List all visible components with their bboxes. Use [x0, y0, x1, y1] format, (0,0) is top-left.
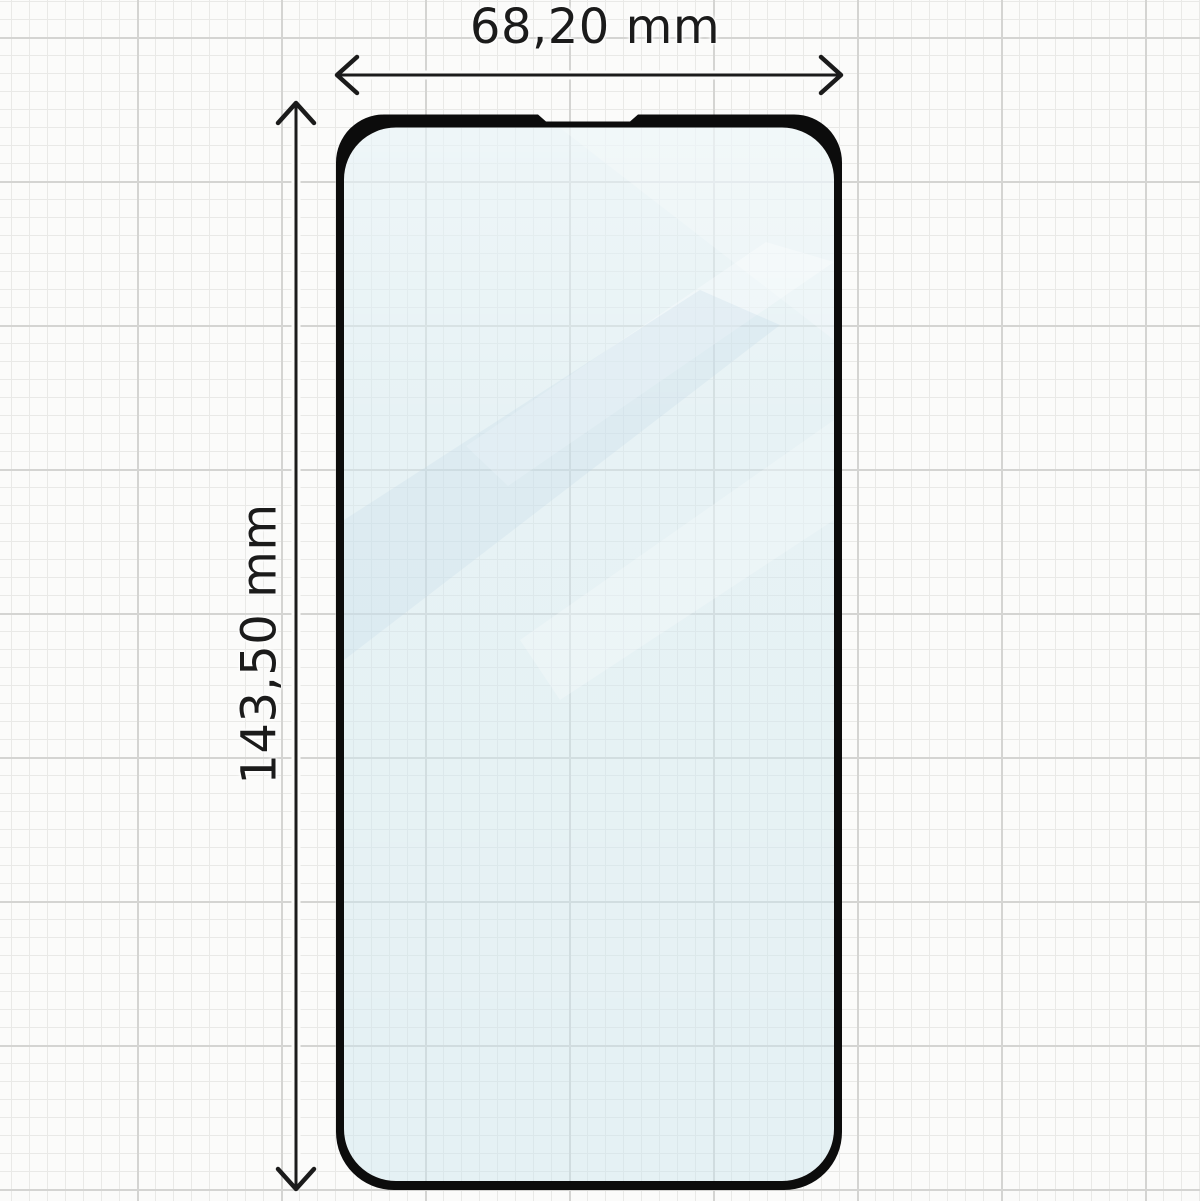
screen-protector-diagram: [0, 0, 1200, 1201]
diagram-canvas: 68,20 mm 143,50 mm: [0, 0, 1200, 1201]
width-dimension: [337, 57, 841, 93]
height-dimension-label: 143,50 mm: [234, 503, 287, 784]
protector-glass: [344, 127, 834, 1181]
width-dimension-label: 68,20 mm: [470, 1, 720, 54]
